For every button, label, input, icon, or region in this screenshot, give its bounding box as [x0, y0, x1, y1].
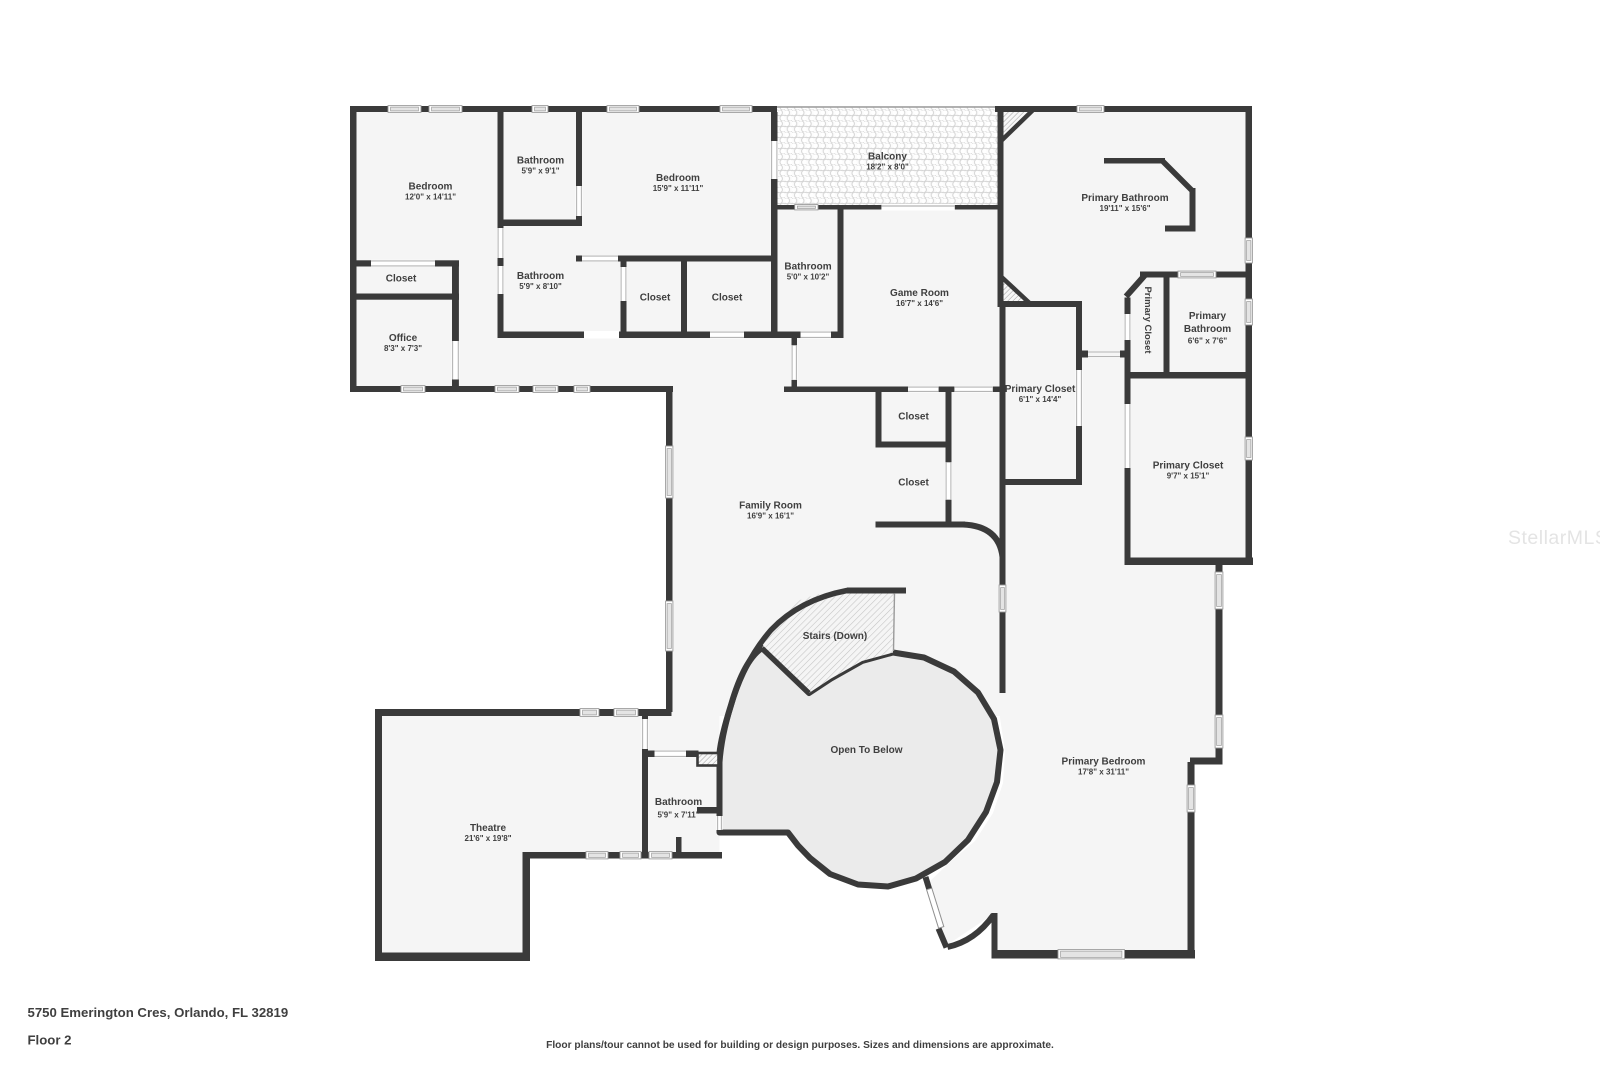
svg-text:5'9" x 8'10": 5'9" x 8'10" [519, 282, 562, 291]
svg-text:Primary Bathroom: Primary Bathroom [1081, 193, 1168, 204]
svg-text:17'8" x 31'11": 17'8" x 31'11" [1078, 768, 1129, 777]
svg-text:5750 Emerington Cres, Orlando,: 5750 Emerington Cres, Orlando, FL 32819 [28, 1005, 289, 1020]
svg-text:Primary: Primary [1189, 311, 1227, 322]
svg-text:6'1" x 14'4": 6'1" x 14'4" [1019, 395, 1062, 404]
svg-text:9'7" x 15'1": 9'7" x 15'1" [1167, 472, 1210, 481]
svg-text:19'11" x 15'6": 19'11" x 15'6" [1100, 204, 1151, 213]
svg-text:Bathroom: Bathroom [517, 271, 564, 282]
svg-text:8'3" x 7'3": 8'3" x 7'3" [384, 344, 422, 353]
svg-text:Open To Below: Open To Below [830, 745, 902, 756]
svg-text:Theatre: Theatre [470, 823, 507, 834]
svg-text:Floor plans/tour cannot be use: Floor plans/tour cannot be used for buil… [546, 1040, 1054, 1051]
svg-text:Family Room: Family Room [739, 501, 802, 512]
svg-text:Bathroom: Bathroom [1184, 324, 1231, 335]
svg-text:6'6" x 7'6": 6'6" x 7'6" [1188, 336, 1228, 346]
svg-text:Closet: Closet [640, 293, 671, 304]
svg-text:18'2" x 8'0": 18'2" x 8'0" [866, 163, 909, 172]
svg-text:Floor 2: Floor 2 [28, 1033, 72, 1048]
svg-text:16'9" x 16'1": 16'9" x 16'1" [747, 512, 794, 521]
svg-text:StellarMLS: StellarMLS [1508, 527, 1600, 549]
svg-text:Closet: Closet [898, 478, 929, 489]
svg-text:Bathroom: Bathroom [784, 262, 831, 273]
svg-text:Bathroom: Bathroom [655, 797, 702, 808]
svg-text:Primary Closet: Primary Closet [1142, 286, 1153, 354]
svg-text:Closet: Closet [712, 293, 743, 304]
svg-text:Closet: Closet [386, 274, 417, 285]
svg-text:Primary Bedroom: Primary Bedroom [1062, 757, 1146, 768]
svg-text:16'7" x 14'6": 16'7" x 14'6" [896, 299, 943, 308]
svg-text:12'0" x 14'11": 12'0" x 14'11" [405, 193, 456, 202]
svg-text:Primary Closet: Primary Closet [1153, 461, 1224, 472]
svg-text:Primary Closet: Primary Closet [1005, 384, 1076, 395]
svg-text:15'9" x 11'11": 15'9" x 11'11" [653, 184, 704, 193]
svg-text:5'0" x 10'2": 5'0" x 10'2" [787, 273, 830, 282]
svg-text:Bathroom: Bathroom [517, 156, 564, 167]
svg-text:5'9" x 7'11": 5'9" x 7'11" [657, 811, 699, 820]
svg-text:Office: Office [389, 333, 418, 344]
svg-text:21'6" x 19'8": 21'6" x 19'8" [465, 834, 512, 843]
svg-text:Game Room: Game Room [890, 288, 949, 299]
svg-text:Balcony: Balcony [868, 152, 907, 163]
svg-text:5'9" x 9'1": 5'9" x 9'1" [521, 167, 559, 176]
svg-text:Bedroom: Bedroom [409, 182, 453, 193]
svg-text:Bedroom: Bedroom [656, 173, 700, 184]
svg-text:Stairs (Down): Stairs (Down) [803, 631, 867, 642]
svg-text:Closet: Closet [898, 412, 929, 423]
